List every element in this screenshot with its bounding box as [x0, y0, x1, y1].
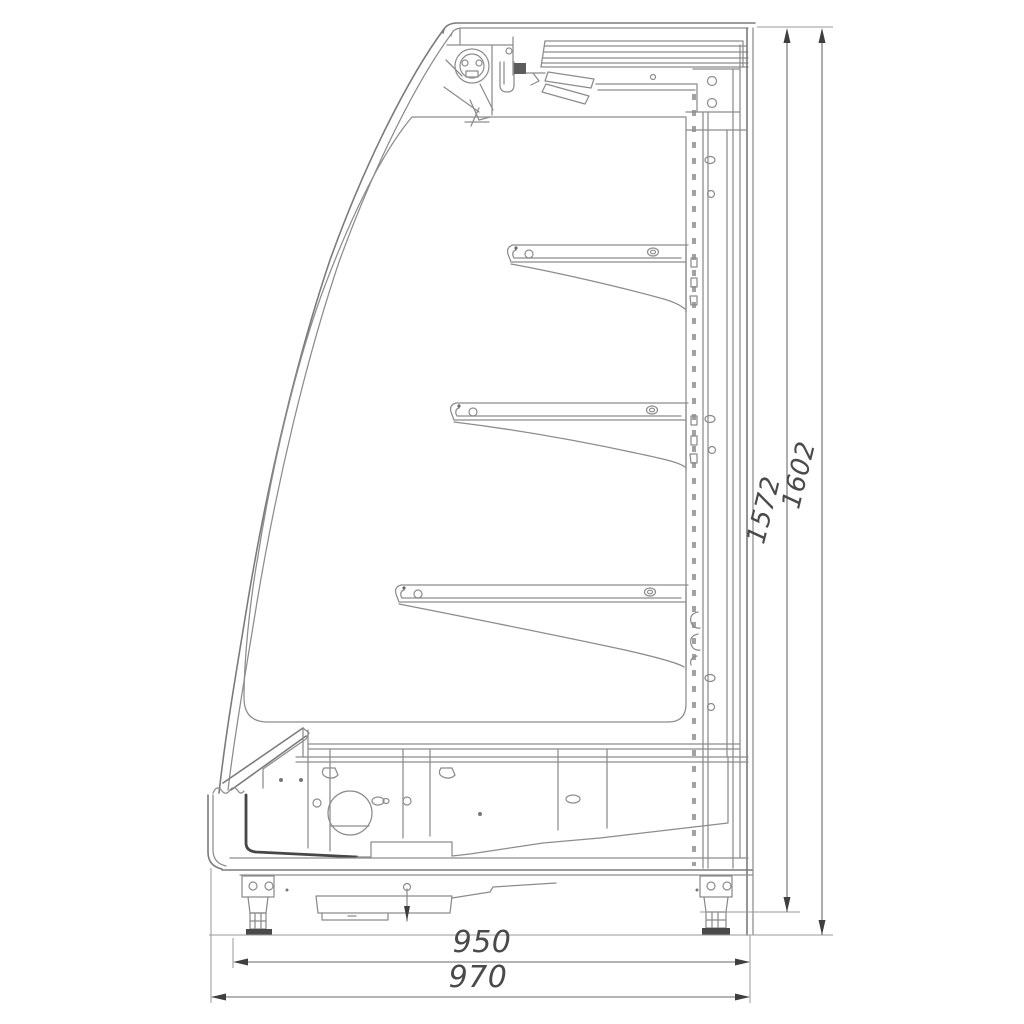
- dimension-height-inner: 1572: [741, 28, 790, 912]
- dimension-label-950: 950: [453, 925, 512, 960]
- dimension-label-1602: 1602: [776, 438, 822, 511]
- base-well: [208, 728, 752, 875]
- shelf-bottom: [396, 585, 700, 670]
- drain-pan: [316, 883, 556, 921]
- dimension-label-1572: 1572: [741, 473, 787, 546]
- display-case-side-section-drawing: 1572 1602 950 970: [0, 0, 1024, 1024]
- adjustable-foot-front: [242, 876, 289, 935]
- front-glass-curve: [219, 29, 452, 793]
- adjustable-foot-rear: [696, 876, 733, 935]
- dimension-label-970: 970: [449, 960, 508, 995]
- shelf-middle: [451, 403, 697, 470]
- technical-drawing-page: 1572 1602 950 970: [0, 0, 1024, 1024]
- canopy-top: [443, 23, 755, 126]
- shelf-top: [508, 245, 697, 312]
- back-wall: [600, 28, 753, 935]
- dimension-height-overall: 1602: [776, 28, 825, 935]
- dimension-width-overall: 970: [211, 960, 750, 1001]
- top-panel: [531, 41, 748, 112]
